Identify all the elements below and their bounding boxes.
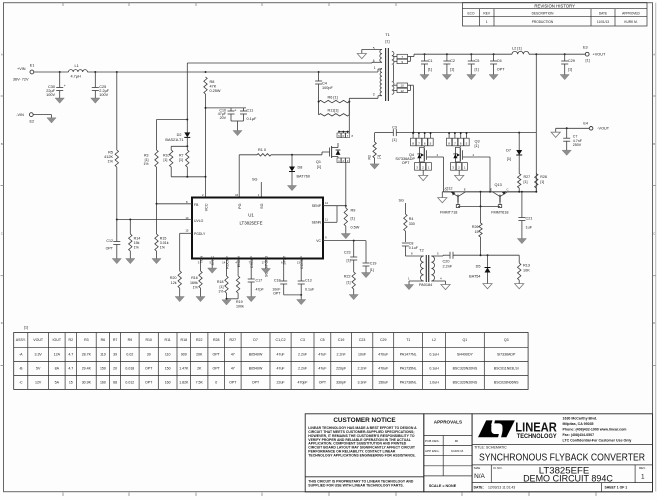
svg-text:28.7K: 28.7K bbox=[82, 353, 92, 357]
svg-text:330: 330 bbox=[409, 222, 415, 226]
svg-text:0.1uF: 0.1uF bbox=[409, 246, 419, 250]
svg-text:C29: C29 bbox=[568, 59, 575, 63]
svg-text:B0540W: B0540W bbox=[249, 367, 263, 371]
svg-text:1: 1 bbox=[641, 474, 645, 481]
svg-text:2.2nF: 2.2nF bbox=[443, 265, 453, 269]
svg-text:Q1: Q1 bbox=[463, 338, 468, 342]
svg-text:2.2nF: 2.2nF bbox=[358, 367, 368, 371]
svg-text:12k: 12k bbox=[171, 281, 177, 285]
svg-text:R28: R28 bbox=[213, 338, 220, 342]
svg-text:CCOMP: CCOMP bbox=[300, 255, 304, 269]
svg-text:16: 16 bbox=[235, 193, 239, 197]
svg-text:2.2nF: 2.2nF bbox=[298, 353, 308, 357]
svg-text:12: 12 bbox=[401, 89, 405, 93]
svg-text:47uF: 47uF bbox=[277, 353, 286, 357]
svg-text:39: 39 bbox=[113, 353, 117, 357]
svg-text:110: 110 bbox=[165, 353, 171, 357]
svg-text:169k: 169k bbox=[190, 281, 198, 285]
svg-text:[1]: [1] bbox=[385, 40, 389, 44]
svg-text:30.9K: 30.9K bbox=[82, 381, 92, 385]
svg-text:Q3: Q3 bbox=[504, 338, 509, 342]
svg-text:250V: 250V bbox=[573, 143, 582, 147]
svg-text:8A: 8A bbox=[55, 367, 60, 371]
svg-text:4.7: 4.7 bbox=[68, 367, 73, 371]
svg-text:L2: L2 bbox=[432, 338, 436, 342]
svg-text:BAT54: BAT54 bbox=[469, 275, 480, 279]
svg-text:36V- 72V: 36V- 72V bbox=[13, 78, 29, 82]
svg-text:PA1477NL: PA1477NL bbox=[400, 353, 417, 357]
svg-text:10nF: 10nF bbox=[358, 353, 367, 357]
svg-text:DATE:: DATE: bbox=[474, 486, 484, 490]
svg-text:C: C bbox=[445, 188, 447, 192]
svg-text:C11: C11 bbox=[247, 108, 254, 112]
svg-text:L1: L1 bbox=[75, 64, 79, 68]
svg-text:VCC: VCC bbox=[204, 203, 208, 211]
svg-text:C20: C20 bbox=[443, 260, 450, 264]
svg-text:0.5W: 0.5W bbox=[351, 226, 360, 230]
svg-text:29.4K: 29.4K bbox=[82, 367, 92, 371]
svg-text:0.1uF: 0.1uF bbox=[305, 287, 315, 291]
svg-text:D7: D7 bbox=[253, 338, 258, 342]
svg-text:0.018: 0.018 bbox=[125, 367, 134, 371]
svg-text:VC: VC bbox=[316, 239, 321, 243]
svg-text:R26: R26 bbox=[472, 225, 479, 229]
svg-text:C1,C2: C1,C2 bbox=[276, 338, 286, 342]
svg-text:+VOUT: +VOUT bbox=[593, 53, 606, 57]
svg-text:R28: R28 bbox=[540, 175, 547, 179]
svg-text:12/03/13 11:01:43: 12/03/13 11:01:43 bbox=[488, 486, 515, 490]
svg-text:Phone: (408)432-1900 www.li: Phone: (408)432-1900 www.linear.com bbox=[563, 428, 627, 432]
svg-text:APPROVALS: APPROVALS bbox=[434, 420, 462, 425]
svg-text:R6: R6 bbox=[101, 338, 106, 342]
svg-text:+: + bbox=[235, 109, 237, 113]
svg-text:D7: D7 bbox=[506, 149, 511, 153]
svg-text:B: B bbox=[1, 142, 3, 146]
svg-text:FMMT718: FMMT718 bbox=[440, 211, 457, 215]
svg-text:PA0184: PA0184 bbox=[419, 283, 432, 287]
svg-text:R1 0: R1 0 bbox=[258, 148, 266, 152]
svg-text:R27: R27 bbox=[524, 175, 531, 179]
svg-text:[1]: [1] bbox=[347, 259, 351, 263]
svg-text:150: 150 bbox=[165, 367, 171, 371]
svg-text:7.5K: 7.5K bbox=[196, 381, 204, 385]
svg-text:OPT: OPT bbox=[319, 381, 327, 385]
svg-text:C3: C3 bbox=[300, 338, 305, 342]
svg-text:ROCMP: ROCMP bbox=[225, 255, 229, 269]
svg-text:D5: D5 bbox=[476, 265, 481, 269]
svg-text:REV.: REV. bbox=[639, 466, 646, 470]
svg-text:[1]: [1] bbox=[568, 68, 572, 72]
svg-text:0.1uH: 0.1uH bbox=[429, 353, 439, 357]
svg-text:SFST: SFST bbox=[283, 255, 287, 265]
svg-text:1.47K: 1.47K bbox=[179, 367, 189, 371]
svg-text:BSC028N06NS: BSC028N06NS bbox=[494, 381, 519, 385]
svg-text:R7: R7 bbox=[113, 338, 118, 342]
svg-text:DESCRIPTION: DESCRIPTION bbox=[532, 12, 554, 16]
svg-text:15: 15 bbox=[185, 229, 189, 233]
svg-text:E3: E3 bbox=[583, 46, 588, 50]
svg-text:[1]: [1] bbox=[220, 285, 224, 289]
svg-text:C3: C3 bbox=[392, 125, 397, 129]
svg-text:R6 [1]: R6 [1] bbox=[328, 95, 338, 99]
svg-text:47uF: 47uF bbox=[318, 367, 327, 371]
svg-text:D: D bbox=[653, 321, 655, 325]
svg-text:[1]: [1] bbox=[392, 138, 396, 142]
svg-text:Q1: Q1 bbox=[316, 160, 321, 164]
svg-text:1%: 1% bbox=[193, 286, 199, 290]
svg-text:SG: SG bbox=[260, 203, 264, 208]
svg-text:[1]: [1] bbox=[475, 68, 479, 72]
svg-text:R10: R10 bbox=[145, 338, 152, 342]
svg-text:100V: 100V bbox=[46, 93, 55, 97]
svg-text:VOUT: VOUT bbox=[33, 338, 44, 342]
svg-text:SYNC: SYNC bbox=[211, 255, 215, 265]
svg-text:470uF: 470uF bbox=[378, 367, 389, 371]
svg-text:110: 110 bbox=[100, 353, 106, 357]
svg-text:[1]: [1] bbox=[370, 268, 374, 272]
svg-text:C17: C17 bbox=[256, 279, 263, 283]
svg-text:20V: 20V bbox=[220, 116, 227, 120]
svg-text:1.82K: 1.82K bbox=[179, 381, 189, 385]
svg-text:PGDLY: PGDLY bbox=[194, 232, 206, 236]
svg-text:C8: C8 bbox=[409, 242, 414, 246]
svg-text:[1]: [1] bbox=[524, 180, 528, 184]
svg-text:[1]: [1] bbox=[317, 165, 321, 169]
svg-text:[1]: [1] bbox=[507, 157, 511, 161]
svg-text:3: 3 bbox=[373, 93, 375, 97]
svg-text:BAS21LT1: BAS21LT1 bbox=[165, 138, 183, 142]
svg-text:C29: C29 bbox=[380, 338, 387, 342]
svg-text:C: C bbox=[507, 187, 509, 191]
svg-text:0: 0 bbox=[215, 381, 217, 385]
svg-text:PA1735NL: PA1735NL bbox=[400, 367, 417, 371]
svg-text:OPT: OPT bbox=[145, 381, 153, 385]
svg-text:R27: R27 bbox=[230, 338, 237, 342]
svg-text:PCB DES.: PCB DES. bbox=[425, 439, 440, 443]
svg-text:100pF: 100pF bbox=[322, 86, 333, 90]
svg-text:APP ENG.: APP ENG. bbox=[425, 449, 440, 453]
svg-text:[1]: [1] bbox=[377, 155, 381, 159]
svg-text:Q13: Q13 bbox=[495, 183, 502, 187]
svg-text:SGND/PGND: SGND/PGND bbox=[265, 255, 269, 277]
svg-text:R14: R14 bbox=[134, 237, 141, 241]
svg-text:C5: C5 bbox=[475, 59, 480, 63]
svg-text:BSC320N20NS: BSC320N20NS bbox=[453, 367, 478, 371]
svg-text:SHEET 1 OF 1: SHEET 1 OF 1 bbox=[605, 486, 628, 490]
svg-text:22uF: 22uF bbox=[277, 381, 286, 385]
svg-text:15: 15 bbox=[69, 381, 73, 385]
svg-text:TITLE: SCHEMATIC: TITLE: SCHEMATIC bbox=[474, 446, 507, 450]
svg-text:ECO: ECO bbox=[468, 12, 475, 16]
svg-text:2K: 2K bbox=[197, 367, 202, 371]
svg-text:160: 160 bbox=[100, 381, 106, 385]
svg-text:Fax: (408)434-0507: Fax: (408)434-0507 bbox=[563, 433, 595, 437]
svg-text:[1]: [1] bbox=[179, 158, 183, 162]
svg-text:OPT: OPT bbox=[229, 381, 237, 385]
svg-text:OPT: OPT bbox=[497, 68, 505, 72]
svg-text:R5: R5 bbox=[108, 151, 113, 155]
svg-text:E1: E1 bbox=[30, 64, 35, 68]
svg-text:-C: -C bbox=[19, 381, 23, 385]
svg-text:[1]: [1] bbox=[347, 281, 351, 285]
svg-text:0.1uH: 0.1uH bbox=[429, 367, 439, 371]
svg-text:R20: R20 bbox=[170, 276, 177, 280]
svg-text:10nF: 10nF bbox=[272, 287, 281, 291]
svg-text:39: 39 bbox=[147, 353, 151, 357]
svg-text:3.01k: 3.01k bbox=[160, 241, 169, 245]
svg-text:20K: 20K bbox=[196, 353, 203, 357]
svg-text:11: 11 bbox=[325, 218, 328, 222]
svg-text:Si4490DY: Si4490DY bbox=[457, 353, 474, 357]
svg-text:47: 47 bbox=[231, 367, 235, 371]
svg-text:[1]: [1] bbox=[475, 144, 479, 148]
svg-text:SG: SG bbox=[399, 199, 405, 203]
svg-text:BSC320N20NS: BSC320N20NS bbox=[453, 381, 478, 385]
svg-text:909: 909 bbox=[181, 353, 187, 357]
svg-text:-VIN: -VIN bbox=[16, 113, 24, 117]
svg-text:47uF: 47uF bbox=[277, 367, 286, 371]
svg-text:LT3825EFE: LT3825EFE bbox=[239, 220, 262, 225]
svg-text:KURK M.: KURK M. bbox=[624, 20, 637, 24]
svg-text:IC NO.: IC NO. bbox=[493, 466, 502, 470]
svg-text:+: + bbox=[64, 84, 66, 88]
svg-text:R15: R15 bbox=[160, 237, 167, 241]
svg-text:3.3V: 3.3V bbox=[35, 353, 43, 357]
svg-text:OPT: OPT bbox=[145, 367, 153, 371]
svg-text:R18: R18 bbox=[217, 280, 224, 284]
svg-text:C19: C19 bbox=[370, 262, 377, 266]
svg-text:150: 150 bbox=[100, 367, 106, 371]
svg-text:Q3: Q3 bbox=[475, 140, 480, 144]
svg-text:47uF: 47uF bbox=[318, 353, 327, 357]
svg-text:1: 1 bbox=[374, 66, 376, 70]
svg-text:0.1µF: 0.1µF bbox=[247, 117, 257, 121]
svg-text:470uF: 470uF bbox=[378, 353, 389, 357]
svg-text:0.02: 0.02 bbox=[126, 353, 133, 357]
svg-text:D: D bbox=[1, 321, 3, 325]
svg-text:1%: 1% bbox=[108, 160, 114, 164]
svg-text:R22: R22 bbox=[344, 275, 351, 279]
svg-text:-A: -A bbox=[19, 353, 23, 357]
svg-text:R11: R11 bbox=[165, 338, 171, 342]
svg-text:R3: R3 bbox=[84, 338, 89, 342]
svg-text:MI: MI bbox=[455, 439, 459, 443]
svg-text:R18: R18 bbox=[181, 338, 188, 342]
svg-text:100V: 100V bbox=[99, 93, 108, 97]
svg-text:C23: C23 bbox=[359, 338, 366, 342]
svg-text:R16: R16 bbox=[191, 276, 198, 280]
svg-text:DEMO CIRCUIT 894C: DEMO CIRCUIT 894C bbox=[523, 473, 613, 483]
svg-text:R22: R22 bbox=[196, 338, 203, 342]
svg-text:5A: 5A bbox=[55, 381, 60, 385]
svg-text:150uF: 150uF bbox=[378, 381, 389, 385]
svg-text:Milpitas, CA 95035: Milpitas, CA 95035 bbox=[563, 422, 594, 426]
svg-text:B: B bbox=[653, 142, 655, 146]
svg-text:1%: 1% bbox=[143, 162, 148, 166]
svg-text:[1]: [1] bbox=[428, 68, 432, 72]
svg-text:[1]: [1] bbox=[24, 326, 28, 330]
svg-text:4.7µH: 4.7µH bbox=[71, 75, 81, 79]
svg-text:4.7: 4.7 bbox=[68, 353, 73, 357]
svg-text:PRODUCTION: PRODUCTION bbox=[532, 20, 554, 24]
svg-text:2.2nF: 2.2nF bbox=[337, 353, 347, 357]
svg-text:2.2nF: 2.2nF bbox=[298, 367, 308, 371]
svg-text:12: 12 bbox=[325, 201, 329, 205]
svg-text:ASSY.: ASSY. bbox=[16, 338, 26, 342]
svg-text:1%: 1% bbox=[218, 290, 224, 294]
svg-text:160: 160 bbox=[165, 381, 171, 385]
svg-text:R11[1]: R11[1] bbox=[328, 109, 339, 113]
svg-text:1uF: 1uF bbox=[526, 226, 533, 230]
svg-text:C: C bbox=[653, 232, 655, 236]
svg-text:[1]: [1] bbox=[586, 59, 590, 63]
svg-text:412K: 412K bbox=[104, 155, 113, 159]
svg-text:T2: T2 bbox=[419, 249, 423, 253]
svg-text:12A: 12A bbox=[54, 353, 61, 357]
svg-text:R8: R8 bbox=[210, 80, 215, 84]
svg-text:14: 14 bbox=[222, 261, 226, 265]
svg-text:R9: R9 bbox=[128, 338, 133, 342]
svg-text:3.3nF: 3.3nF bbox=[358, 381, 368, 385]
svg-text:SENN: SENN bbox=[312, 221, 322, 225]
svg-text:C18: C18 bbox=[274, 279, 281, 283]
svg-text:100k: 100k bbox=[236, 305, 244, 309]
svg-text:15k: 15k bbox=[134, 241, 140, 245]
svg-text:PG: PG bbox=[238, 203, 242, 208]
svg-text:D8: D8 bbox=[298, 166, 303, 170]
svg-text:OPT: OPT bbox=[252, 381, 260, 385]
svg-text:T1: T1 bbox=[385, 32, 390, 37]
svg-text:OPT: OPT bbox=[213, 353, 221, 357]
svg-text:REV: REV bbox=[483, 12, 490, 16]
svg-text:1: 1 bbox=[486, 20, 488, 24]
svg-text:C23: C23 bbox=[344, 251, 351, 255]
svg-text:PA1736NL: PA1736NL bbox=[400, 381, 417, 385]
svg-text:FMMT618: FMMT618 bbox=[491, 211, 508, 215]
svg-text:SYNCHRONOUS FLYBACK CONVERTER: SYNCHRONOUS FLYBACK CONVERTER bbox=[479, 453, 645, 464]
svg-text:BAT760: BAT760 bbox=[297, 175, 310, 179]
svg-text:LTC Confidential-For Customer: LTC Confidential-For Customer Use Only bbox=[563, 439, 632, 443]
svg-text:10K: 10K bbox=[523, 269, 530, 273]
svg-text:B0540W: B0540W bbox=[249, 353, 263, 357]
svg-text:SG: SG bbox=[252, 178, 258, 182]
svg-text:CUSTOMER NOTICE: CUSTOMER NOTICE bbox=[333, 417, 396, 424]
svg-text:TECHNOLOGY APPLICATIONS ENGINE: TECHNOLOGY APPLICATIONS ENGINEERING FOR … bbox=[308, 453, 415, 457]
svg-text:1630 McCarthy Blvd.: 1630 McCarthy Blvd. bbox=[563, 416, 598, 420]
svg-text:DATE: DATE bbox=[599, 12, 607, 16]
svg-text:1%: 1% bbox=[160, 245, 166, 249]
svg-text:R4: R4 bbox=[409, 217, 414, 221]
svg-text:13: 13 bbox=[297, 261, 301, 265]
svg-text:BSC011N03LSI: BSC011N03LSI bbox=[494, 367, 519, 371]
svg-text:OPT: OPT bbox=[402, 161, 410, 165]
svg-text:47K: 47K bbox=[210, 85, 217, 89]
svg-text:OSCAP: OSCAP bbox=[250, 255, 254, 268]
svg-text:R9: R9 bbox=[351, 209, 356, 213]
svg-text:E2: E2 bbox=[30, 120, 35, 124]
svg-text:+VIN: +VIN bbox=[17, 67, 26, 71]
svg-text:C19: C19 bbox=[338, 338, 345, 342]
svg-text:KURK M.: KURK M. bbox=[451, 449, 464, 453]
svg-text:R19: R19 bbox=[236, 300, 243, 304]
svg-text:D2: D2 bbox=[177, 133, 182, 137]
svg-text:17: 17 bbox=[262, 261, 266, 265]
svg-text:1.0uH: 1.0uH bbox=[429, 381, 439, 385]
svg-text:R13: R13 bbox=[523, 264, 530, 268]
svg-text:68: 68 bbox=[113, 381, 117, 385]
svg-text:11/01/13: 11/01/13 bbox=[597, 20, 609, 24]
svg-text:[1]: [1] bbox=[351, 217, 355, 221]
svg-text:TECHNOLOGY: TECHNOLOGY bbox=[517, 434, 557, 440]
svg-text:R2: R2 bbox=[69, 338, 74, 342]
svg-text:C2: C2 bbox=[450, 59, 455, 63]
svg-text:470pF: 470pF bbox=[298, 381, 309, 385]
svg-text:15: 15 bbox=[475, 230, 479, 234]
svg-text:E4: E4 bbox=[583, 122, 588, 126]
svg-text:C5: C5 bbox=[320, 338, 325, 342]
svg-text:REVISION HISTORY: REVISION HISTORY bbox=[534, 3, 575, 8]
svg-text:-VOUT: -VOUT bbox=[597, 127, 609, 131]
svg-text:T1: T1 bbox=[406, 338, 410, 342]
svg-text:10: 10 bbox=[401, 84, 405, 88]
svg-text:C13: C13 bbox=[305, 279, 312, 283]
svg-text:5: 5 bbox=[373, 47, 375, 51]
svg-text:E: E bbox=[490, 188, 492, 192]
svg-text:E: E bbox=[464, 187, 466, 191]
svg-text:1%: 1% bbox=[134, 245, 140, 249]
svg-text:Si7336ADP: Si7336ADP bbox=[497, 353, 516, 357]
svg-text:5V: 5V bbox=[36, 367, 41, 371]
svg-text:47pF: 47pF bbox=[256, 287, 265, 291]
svg-text:U1: U1 bbox=[248, 213, 254, 218]
svg-text:SENP: SENP bbox=[312, 204, 322, 208]
svg-text:A: A bbox=[1, 53, 3, 57]
svg-text:[1]: [1] bbox=[164, 158, 168, 162]
svg-text:TON: TON bbox=[199, 255, 203, 263]
svg-text:C12: C12 bbox=[106, 239, 113, 243]
svg-text:APPROVED: APPROVED bbox=[622, 12, 640, 16]
svg-text:LINEAR: LINEAR bbox=[515, 420, 557, 434]
svg-text:20: 20 bbox=[113, 367, 117, 371]
svg-text:C1: C1 bbox=[428, 59, 433, 63]
svg-text:OPT: OPT bbox=[106, 246, 114, 250]
svg-text:N/A: N/A bbox=[474, 473, 485, 480]
svg-text:12V: 12V bbox=[35, 381, 42, 385]
svg-text:SIZE: SIZE bbox=[474, 466, 481, 470]
svg-text:[1]: [1] bbox=[540, 180, 544, 184]
svg-text:IOUT: IOUT bbox=[53, 338, 62, 342]
svg-text:SUPPLIED FOR USE WITH LINEAR T: SUPPLIED FOR USE WITH LINEAR TECHNOLOGY … bbox=[308, 483, 403, 487]
svg-text:47: 47 bbox=[231, 353, 235, 357]
svg-text:330pF: 330pF bbox=[336, 381, 347, 385]
svg-text:L2 [1]: L2 [1] bbox=[512, 47, 522, 51]
svg-text:OPT: OPT bbox=[213, 367, 221, 371]
svg-text:[1]: [1] bbox=[450, 68, 454, 72]
svg-text:C: C bbox=[1, 232, 3, 236]
svg-text:UVLO: UVLO bbox=[194, 219, 204, 223]
svg-text:220pF: 220pF bbox=[336, 367, 347, 371]
svg-text:ENDLY: ENDLY bbox=[237, 255, 241, 267]
svg-text:C21: C21 bbox=[526, 217, 533, 221]
svg-text:SCALE = NONE: SCALE = NONE bbox=[429, 484, 457, 488]
svg-text:0.25W: 0.25W bbox=[210, 89, 221, 93]
svg-text:A: A bbox=[653, 53, 655, 57]
svg-text:0.012: 0.012 bbox=[125, 381, 134, 385]
svg-text:C6: C6 bbox=[497, 59, 502, 63]
svg-text:FB: FB bbox=[194, 203, 199, 207]
svg-text:R2: R2 bbox=[368, 155, 372, 160]
svg-text:-B: -B bbox=[19, 367, 23, 371]
